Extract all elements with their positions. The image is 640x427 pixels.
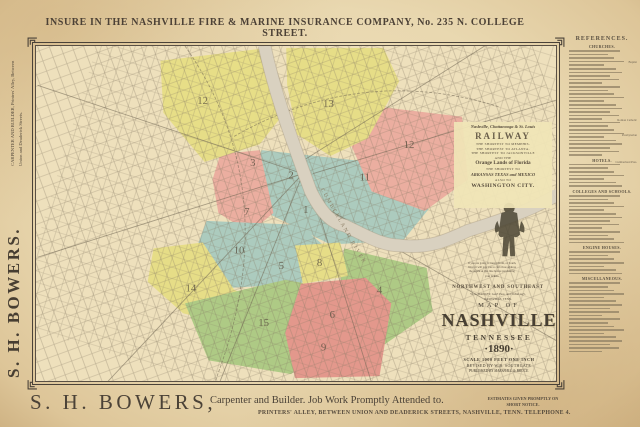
corner-scroll-ornament: [27, 37, 38, 48]
ward-label: 1: [303, 204, 308, 216]
church-category-label: Cumberland Pres.: [603, 160, 637, 164]
reference-list-entry: [569, 82, 602, 84]
agent-city-line: NASHVILLE, TENN.: [442, 297, 554, 302]
references-section-title: ENGINE HOUSES.: [566, 245, 638, 250]
ward-label: 11: [360, 172, 370, 184]
reference-list-entry: [569, 209, 604, 211]
reference-list-entry: [569, 347, 619, 349]
reference-list-entry: [569, 57, 614, 59]
references-misc-list: [566, 282, 638, 352]
ward-label: 3: [250, 157, 255, 169]
references-engine-houses-list: [566, 251, 638, 274]
reference-list-entry: [569, 54, 608, 56]
ward-label: 15: [258, 317, 269, 329]
ward-label: 10: [234, 244, 245, 256]
map-frame: CUMBERLAND RIVER 12 13 12 2 11 3 7 1 10 …: [32, 42, 560, 385]
references-section-title: CHURCHES.: [566, 44, 638, 49]
reference-list-entry: [569, 344, 610, 346]
reference-list-entry: [569, 90, 608, 92]
reference-list-entry: [569, 164, 620, 166]
references-title: REFERENCES.: [566, 36, 638, 42]
reference-list-entry: [569, 242, 624, 244]
reference-list-entry: [569, 100, 604, 102]
left-margin-credentials: CARPENTER AND BUILDER, Printers' Alley, …: [9, 56, 25, 166]
reference-list-entry: [569, 322, 608, 324]
reference-list-entry: [569, 251, 620, 253]
reference-list-entry: [569, 64, 604, 66]
ward-label: 5: [279, 260, 284, 272]
reference-list-entry: [569, 258, 614, 260]
reference-list-entry: [569, 185, 622, 187]
ward-label: 8: [317, 257, 322, 269]
reference-list-entry: [569, 122, 620, 124]
reference-list-entry: [569, 213, 616, 215]
title-year: ·1890·: [440, 343, 557, 355]
reference-list-entry: [569, 282, 620, 284]
corner-scroll-ornament: [554, 379, 565, 390]
fine-print-line: your tickets.: [448, 274, 536, 278]
reference-list-entry: [569, 293, 624, 295]
reference-list-entry: [569, 93, 614, 95]
reference-list-entry: [569, 68, 616, 70]
estimates-line2: SHORT NOTICE.: [487, 402, 559, 408]
reference-list-entry: [569, 206, 624, 208]
reference-list-entry: [569, 308, 610, 310]
church-category-label: Baptist: [603, 60, 637, 64]
reference-list-entry: [569, 75, 610, 77]
reference-list-entry: [569, 147, 610, 149]
reference-list-entry: [569, 255, 608, 257]
reference-list-entry: [569, 125, 608, 127]
map-canvas: CUMBERLAND RIVER 12 13 12 2 11 3 7 1 10 …: [35, 45, 557, 382]
church-category-label: Presbyterian: [603, 133, 637, 137]
title-map-of: MAP OF: [440, 302, 557, 309]
reference-list-entry: [569, 111, 610, 113]
reference-list-entry: [569, 227, 602, 229]
reference-list-entry: [569, 104, 616, 106]
ward-label: 6: [330, 309, 336, 321]
title-city: NASHVILLE: [440, 310, 557, 331]
reference-list-entry: [569, 286, 608, 288]
reference-list-entry: [569, 108, 622, 110]
left-credentials-line2: Union and Deaderick Streets.: [17, 56, 25, 166]
reference-list-entry: [569, 262, 624, 264]
reference-list-entry: [569, 115, 619, 117]
left-credentials-line1: CARPENTER AND BUILDER, Printers' Alley, …: [9, 56, 17, 166]
reference-list-entry: [569, 290, 614, 292]
reference-list-entry: [569, 231, 620, 233]
agent-lines: W. L. DANLEY, Gen'l Pass. and Ticket Ag'…: [442, 292, 554, 301]
references-section-title: MISCELLANEOUS.: [566, 276, 638, 281]
reference-list-entry: [569, 300, 616, 302]
reference-list-entry: [569, 199, 608, 201]
route-line: NORTHWEST AND SOUTHEAST: [442, 285, 554, 290]
ward-label: 14: [185, 283, 196, 295]
reference-list-entry: [569, 333, 604, 335]
reference-list-entry: [569, 136, 604, 138]
ward-label: 4: [377, 285, 383, 297]
reference-list-entry: [569, 224, 619, 226]
reference-list-entry: [569, 311, 619, 313]
reference-list-entry: [569, 50, 620, 52]
railway-ad: Nashville, Chattanooga & St. Louis RAILW…: [454, 122, 552, 208]
reference-list-entry: [569, 326, 614, 328]
left-margin-advertiser-name: S. H. BOWERS.: [4, 163, 24, 378]
reference-list-entry: [569, 329, 624, 331]
reference-list-entry: [569, 175, 624, 177]
ad-company-line: Nashville, Chattanooga & St. Louis: [454, 122, 552, 130]
reference-list-entry: [569, 235, 608, 237]
reference-list-entry: [569, 167, 608, 169]
bottom-estimates-note: ESTIMATES GIVEN PROMPTLY ON SHORT NOTICE…: [487, 396, 559, 409]
reference-list-entry: [569, 297, 604, 299]
references-schools-list: [566, 195, 638, 243]
reference-list-entry: [569, 318, 620, 320]
title-scale: SCALE 1000 FEET ONE INCH: [440, 357, 557, 362]
reference-list-entry: [569, 266, 604, 268]
reference-list-entry: [569, 97, 624, 99]
reference-list-entry: [569, 315, 602, 317]
reference-list-entry: [569, 340, 622, 342]
reference-list-entry: [569, 269, 616, 271]
ward-label: 12: [197, 95, 208, 107]
ward-label: 2: [288, 170, 293, 182]
ad-washington-city: WASHINGTON CITY.: [454, 183, 552, 191]
reference-list-entry: [569, 140, 616, 142]
title-state: TENNESSEE: [440, 333, 557, 342]
bottom-tagline: Carpenter and Builder. Job Work Promptly…: [210, 395, 444, 406]
ad-railway-word: RAILWAY: [454, 130, 552, 142]
reference-list-entry: [569, 178, 604, 180]
church-category-label: Roman Catholic: [603, 118, 637, 122]
reference-list-entry: [569, 202, 614, 204]
corner-scroll-ornament: [554, 37, 565, 48]
reference-list-entry: [569, 79, 619, 81]
references-section-title: COLLEGES AND SCHOOLS.: [566, 189, 638, 194]
reference-list-entry: [569, 195, 620, 197]
bottom-advertiser-name: S. H. BOWERS,: [30, 390, 216, 415]
ad-fine-print: If you are going to travel North, or Sou…: [448, 261, 536, 278]
reference-list-entry: [569, 171, 614, 173]
reference-list-entry: [569, 351, 602, 353]
ward-label: 9: [321, 342, 326, 354]
references-column: REFERENCES. CHURCHES. HOTELS. COLLEGES A…: [566, 36, 638, 366]
ward-label: 13: [323, 98, 334, 110]
title-revised-by: REVISED BY W.B. SOUTHGATE: [440, 363, 557, 368]
reference-list-entry: [569, 182, 616, 184]
reference-list-entry: [569, 220, 610, 222]
reference-list-entry: [569, 336, 616, 338]
corner-scroll-ornament: [27, 379, 38, 390]
reference-list-entry: [569, 238, 614, 240]
reference-list-entry: [569, 217, 622, 219]
reference-list-entry: [569, 143, 622, 145]
reference-list-entry: [569, 304, 622, 306]
reference-list-entry: [569, 86, 620, 88]
title-published-by: PUBLISHED BY MARSHALL & BRUCE.: [440, 369, 557, 373]
reference-list-entry: [569, 129, 614, 131]
references-churches-list: [566, 50, 638, 156]
scanned-map-page: INSURE IN THE NASHVILLE FIRE & MARINE IN…: [0, 0, 640, 427]
map-title-cartouche: MAP OF NASHVILLE TENNESSEE ·1890· SCALE …: [440, 302, 557, 373]
references-hotels-list: [566, 164, 638, 187]
ad-orange-lands: Orange Lands of Florida: [454, 160, 552, 167]
ward-label: 7: [244, 206, 250, 218]
insurance-banner: INSURE IN THE NASHVILLE FIRE & MARINE IN…: [30, 17, 540, 39]
reference-list-entry: [569, 154, 602, 156]
reference-list-entry: [569, 72, 622, 74]
ward-label: 12: [404, 139, 415, 151]
bottom-address: PRINTERS' ALLEY, BETWEEN UNION AND DEADE…: [258, 410, 571, 416]
reference-list-entry: [569, 118, 602, 120]
reference-list-entry: [569, 151, 619, 153]
reference-list-entry: [569, 273, 622, 275]
